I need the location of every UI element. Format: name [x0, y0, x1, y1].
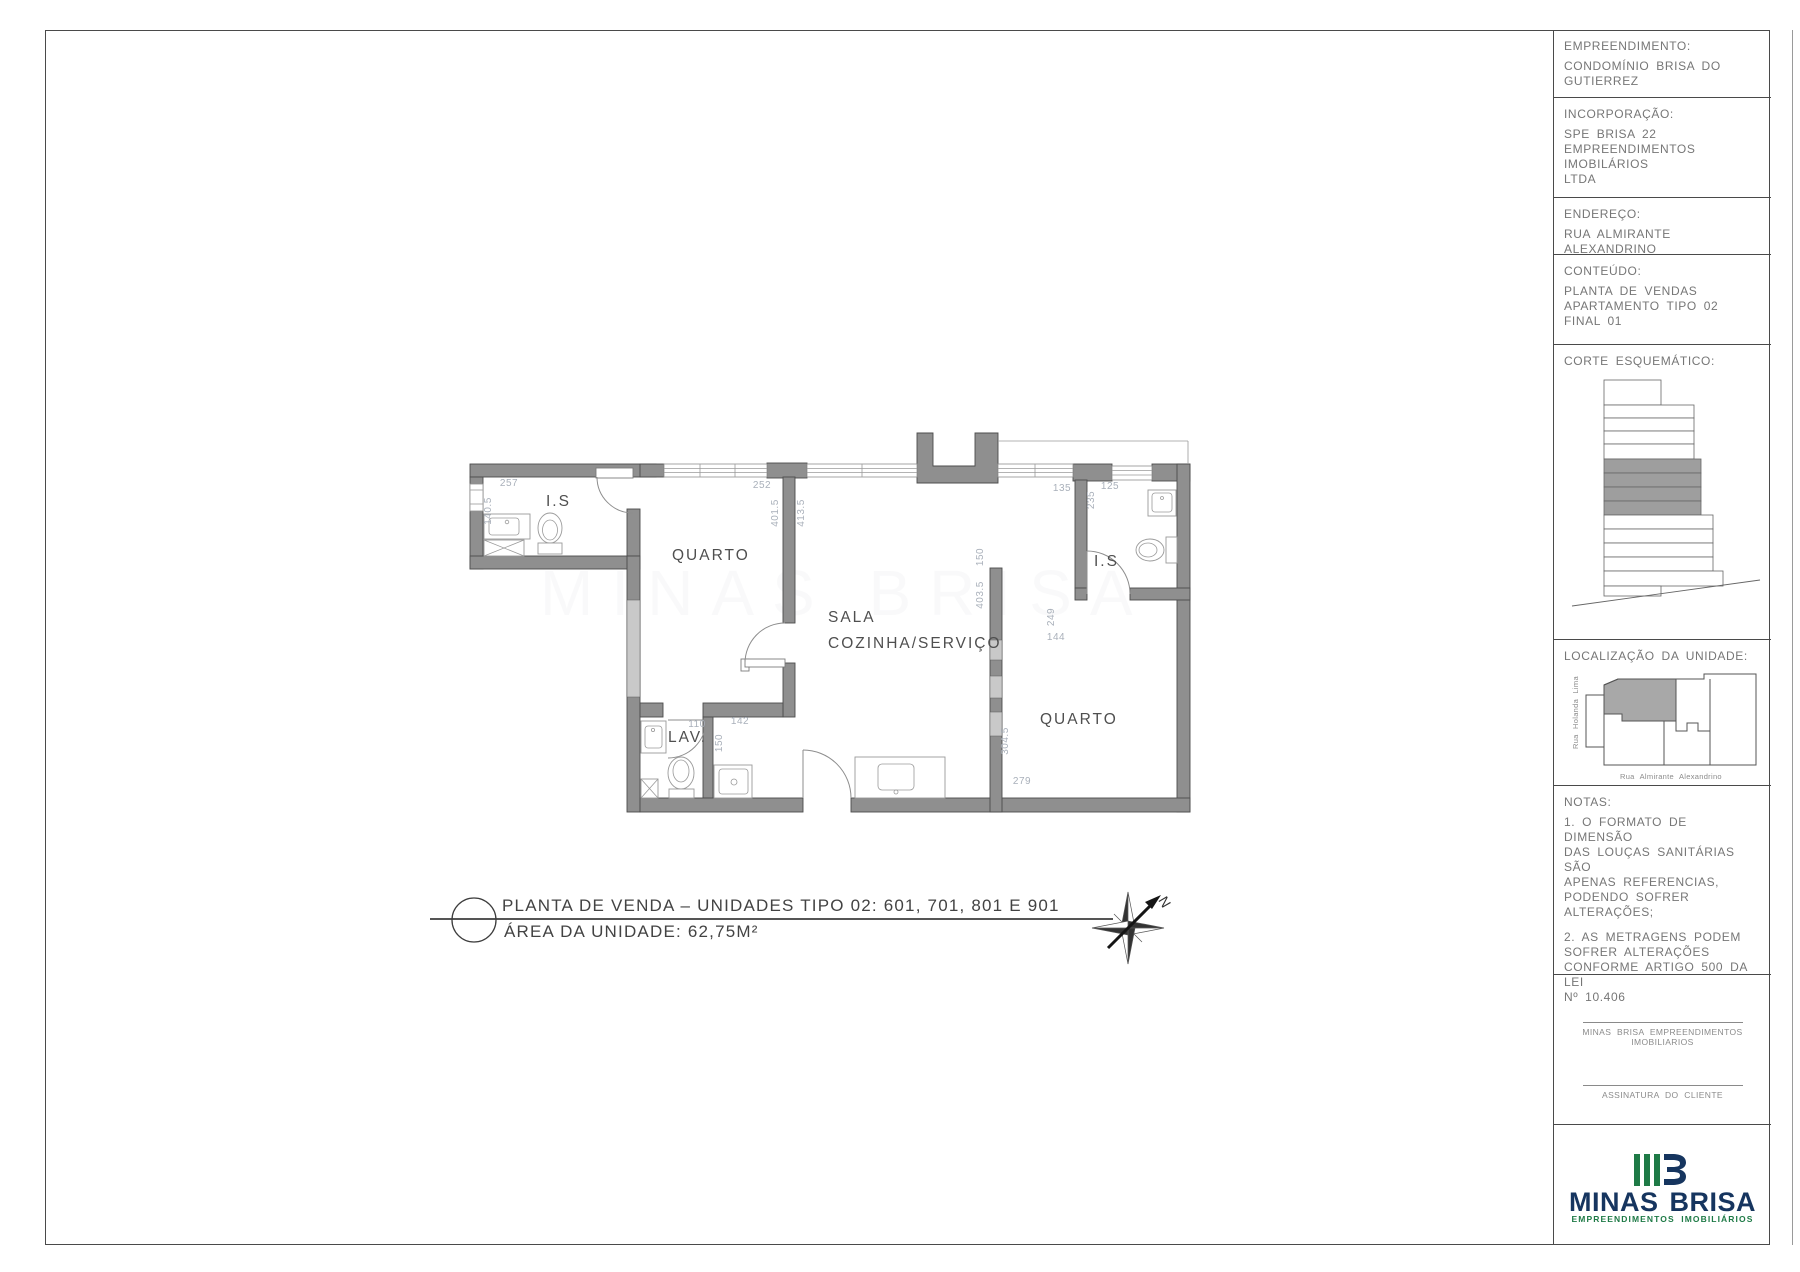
- bathroom1-fixtures: [484, 513, 562, 556]
- field-value: CONDOMÍNIO BRISA DO GUTIERREZ: [1564, 59, 1761, 89]
- service-tank: [714, 765, 752, 798]
- plan-title-line2: ÁREA DA UNIDADE: 62,75M²: [504, 922, 759, 941]
- street-label-bottom: Rua Almirante Alexandrino: [1620, 772, 1722, 781]
- sheet-edge-line: [1792, 30, 1793, 1245]
- toilet: [538, 513, 562, 543]
- titleblock-corte: CORTE ESQUEMÁTICO:: [1553, 345, 1771, 640]
- section-floor: [1604, 557, 1713, 571]
- titleblock-logo: MINAS BRISA EMPREENDIMENTOS IMOBILIÁRIOS: [1553, 1125, 1771, 1245]
- duct-shaft: [917, 433, 998, 483]
- titleblock-notas: NOTAS: 1. O FORMATO DE DIMENSÃO DAS LOUÇ…: [1553, 786, 1771, 975]
- door-quarto1: [741, 623, 785, 671]
- dimension-label: 401.5: [770, 499, 781, 527]
- dimension-label: 304.5: [1000, 727, 1011, 755]
- plan-title: PLANTA DE VENDA – UNIDADES TIPO 02: 601,…: [430, 896, 1113, 942]
- toilet: [668, 757, 694, 789]
- field-value: RUA ALMIRANTE ALEXANDRINO: [1564, 227, 1761, 257]
- section-floor: [1604, 405, 1694, 418]
- section-floor: [1604, 444, 1694, 459]
- section-floor: [1604, 501, 1701, 515]
- dimension-label: 125: [1101, 481, 1119, 492]
- logo-wordmark: MINAS BRISA: [1569, 1195, 1756, 1210]
- field-label: LOCALIZAÇÃO DA UNIDADE:: [1564, 649, 1761, 664]
- note-1: 1. O FORMATO DE DIMENSÃO DAS LOUÇAS SANI…: [1564, 815, 1761, 920]
- room-label-quarto2: QUARTO: [1040, 711, 1118, 728]
- section-floor: [1604, 543, 1713, 557]
- signature-line-builder: [1583, 1022, 1743, 1023]
- dimension-label: 235: [1086, 491, 1097, 509]
- dimension-label: 135: [1053, 483, 1071, 494]
- dimension-label: 150: [975, 548, 986, 566]
- door-entrance: [803, 750, 851, 798]
- street-label-left: Rua Holanda Lima: [1571, 676, 1580, 749]
- highlighted-unit: [1604, 679, 1676, 721]
- field-label: ENDEREÇO:: [1564, 207, 1761, 222]
- kitchen-sink-counter: [855, 757, 945, 798]
- section-floor: [1604, 487, 1701, 501]
- section-floor: [1604, 529, 1713, 543]
- section-floor: [1604, 459, 1701, 473]
- titleblock-incorporacao: INCORPORAÇÃO: SPE BRISA 22 EMPREENDIMENT…: [1553, 98, 1771, 198]
- unit-location-keyplan: Rua Holanda Lima Rua Almirante Alexandri…: [1564, 669, 1762, 787]
- signature-line-client: [1583, 1085, 1743, 1086]
- dimension-label: 140.5: [483, 497, 494, 525]
- field-label: EMPREENDIMENTO:: [1564, 39, 1761, 54]
- section-floor: [1604, 571, 1723, 586]
- north-compass-icon: N: [1092, 892, 1174, 964]
- door-is1: [596, 468, 633, 513]
- dimension-label: 249: [1046, 608, 1057, 626]
- north-label: N: [1155, 894, 1174, 911]
- dimension-label: 144: [1047, 632, 1065, 643]
- logo-tagline: EMPREENDIMENTOS IMOBILIÁRIOS: [1572, 1212, 1754, 1227]
- room-label-sala: SALA: [828, 609, 876, 626]
- field-value: PLANTA DE VENDAS APARTAMENTO TIPO 02 FIN…: [1564, 284, 1761, 329]
- dimension-label: 142: [731, 716, 749, 727]
- signature-client-label: ASSINATURA DO CLIENTE: [1602, 1090, 1723, 1100]
- floor-plan: MINAS BRISA: [430, 425, 1200, 985]
- titleblock-localizacao: LOCALIZAÇÃO DA UNIDADE: Rua Holanda Lima…: [1553, 640, 1771, 786]
- field-label: CORTE ESQUEMÁTICO:: [1564, 354, 1761, 369]
- section-floor: [1604, 473, 1701, 487]
- dimension-label: 257: [500, 478, 518, 489]
- titleblock-signatures: MINAS BRISA EMPREENDIMENTOS IMOBILIARIOS…: [1553, 975, 1771, 1125]
- room-label-is1: I.S: [546, 493, 571, 510]
- dimension-label: 110: [688, 719, 705, 730]
- title-bubble: [452, 898, 496, 942]
- dimension-label: 150: [714, 734, 725, 752]
- room-label-lav: LAV.: [668, 729, 707, 746]
- room-label-cozinha: COZINHA/SERVIÇO: [828, 635, 1002, 652]
- titleblock-empreendimento: EMPREENDIMENTO: CONDOMÍNIO BRISA DO GUTI…: [1553, 30, 1771, 98]
- dimension-label: 403.5: [975, 581, 986, 609]
- section-floor: [1604, 418, 1694, 431]
- room-label-quarto1: QUARTO: [672, 547, 750, 564]
- toilet: [1136, 539, 1164, 561]
- field-label: INCORPORAÇÃO:: [1564, 107, 1761, 122]
- left-wall-light-segment: [627, 600, 640, 697]
- section-floor: [1604, 380, 1661, 405]
- minas-brisa-logo-icon: [1634, 1151, 1692, 1189]
- titleblock-conteudo: CONTEÚDO: PLANTA DE VENDAS APARTAMENTO T…: [1553, 255, 1771, 345]
- dimension-label: 279: [1013, 776, 1031, 787]
- bathroom2-fixtures: [1136, 490, 1177, 563]
- building-section-schematic: [1564, 374, 1762, 629]
- field-label: CONTEÚDO:: [1564, 264, 1761, 279]
- dimension-label: 252: [753, 480, 771, 491]
- dimension-label: 413.5: [796, 499, 807, 527]
- field-value: SPE BRISA 22 EMPREENDIMENTOS IMOBILÁRIOS…: [1564, 127, 1761, 187]
- dimension-labels: 257140.5252401.5413.5150403.513512523524…: [483, 478, 1119, 787]
- plan-title-line1: PLANTA DE VENDA – UNIDADES TIPO 02: 601,…: [502, 896, 1060, 915]
- signature-builder-label: MINAS BRISA EMPREENDIMENTOS IMOBILIARIOS: [1582, 1027, 1742, 1047]
- room-label-is2: I.S: [1094, 553, 1119, 570]
- titleblock-endereco: ENDEREÇO: RUA ALMIRANTE ALEXANDRINO: [1553, 198, 1771, 255]
- field-label: NOTAS:: [1564, 795, 1761, 810]
- drawing-sheet: MINAS BRISA: [0, 0, 1800, 1272]
- section-floor: [1604, 431, 1694, 444]
- section-floor: [1604, 515, 1713, 529]
